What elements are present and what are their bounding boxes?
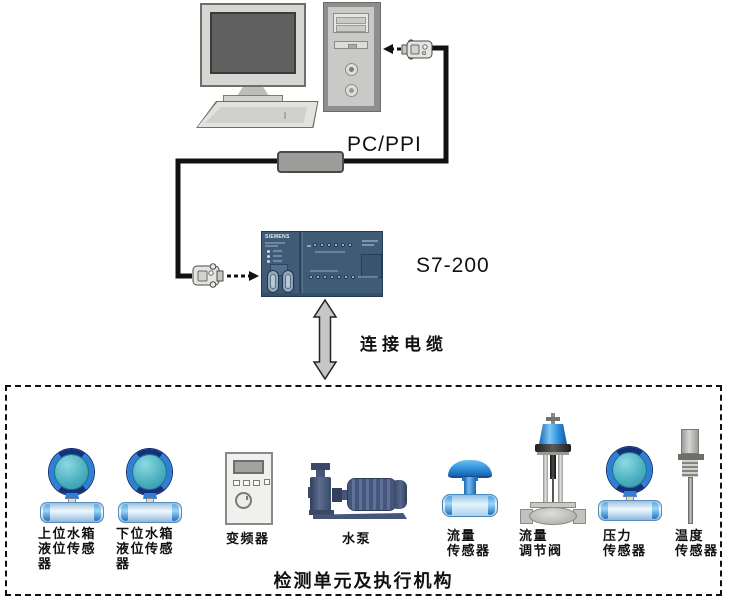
temperature-sensor-illustration: [678, 429, 704, 525]
flow-sensor-label: 流量 传感器: [447, 528, 491, 558]
inverter-label: 变频器: [226, 531, 270, 546]
inverter-display: [233, 460, 264, 474]
siemens-logo: SIEMENS: [265, 234, 290, 240]
plc-unitbox-double-arrow: [314, 300, 336, 379]
computer-tower: [323, 2, 381, 112]
plc-system-diagram: PC/PPI SIEMENS S7-200: [0, 0, 730, 601]
upper-tank-level-sensor-illustration: [40, 449, 104, 523]
monitor-screen: [210, 12, 296, 74]
upper-tank-level-sensor-label: 上位水箱 液位传感 器: [38, 526, 96, 571]
pressure-sensor-illustration: [598, 447, 662, 521]
flow-sensor-illustration: [442, 460, 498, 517]
lower-tank-level-sensor-label: 下位水箱 液位传感 器: [116, 526, 174, 571]
inverter-illustration: [225, 452, 273, 525]
s7-200-label: S7-200: [416, 254, 490, 278]
serial-connector-plc: [193, 264, 223, 288]
pc-ppi-label: PC/PPI: [347, 133, 422, 157]
unit-box-title: 检测单元及执行机构: [5, 567, 722, 593]
reset-button: [345, 84, 358, 97]
serial-connector-pc: [402, 40, 432, 59]
pc-dashed-arrow: [383, 44, 401, 54]
flow-regulating-valve-illustration: [517, 413, 589, 525]
flow-regulating-valve-label: 流量 调节阀: [519, 528, 563, 558]
plc-port-1: [282, 270, 294, 293]
inverter-knob: [235, 492, 252, 509]
water-pump-illustration: [308, 461, 408, 519]
plc-dashed-arrow: [227, 271, 259, 281]
floppy-drive: [334, 41, 368, 49]
plc-expansion-door: [361, 254, 382, 278]
keyboard: [196, 101, 321, 128]
connection-cable-label: 连接电缆: [360, 330, 448, 355]
s7-200-plc: SIEMENS: [261, 231, 383, 297]
plc-port-0: [267, 270, 279, 293]
temperature-sensor-label: 温度 传感器: [675, 528, 719, 558]
monitor-base: [223, 95, 283, 102]
pressure-sensor-label: 压力 传感器: [603, 528, 647, 558]
water-pump-label: 水泵: [342, 531, 371, 546]
power-button: [345, 63, 358, 76]
pc-ppi-adapter: [277, 151, 344, 173]
computer-monitor: [200, 3, 306, 87]
drive-bays: [333, 13, 369, 33]
lower-tank-level-sensor-illustration: [118, 449, 182, 523]
